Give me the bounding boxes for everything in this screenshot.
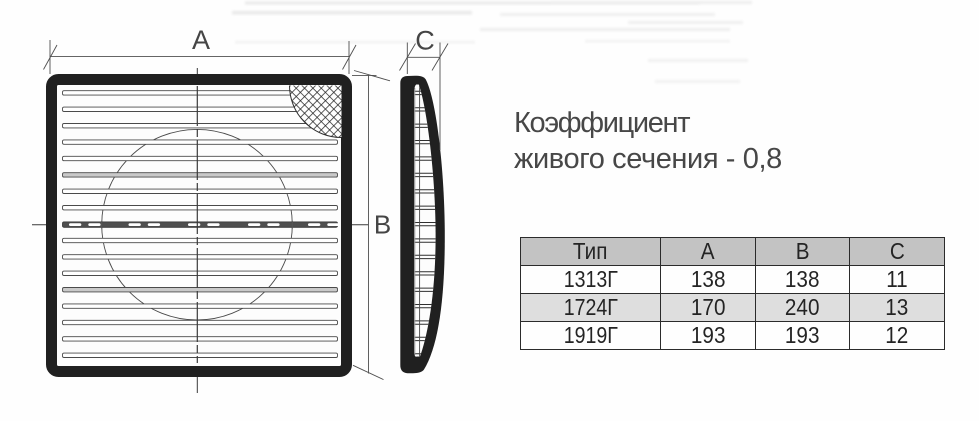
svg-text:A: A xyxy=(192,25,210,55)
svg-text:B: B xyxy=(374,210,391,240)
svg-text:C: C xyxy=(415,26,435,56)
